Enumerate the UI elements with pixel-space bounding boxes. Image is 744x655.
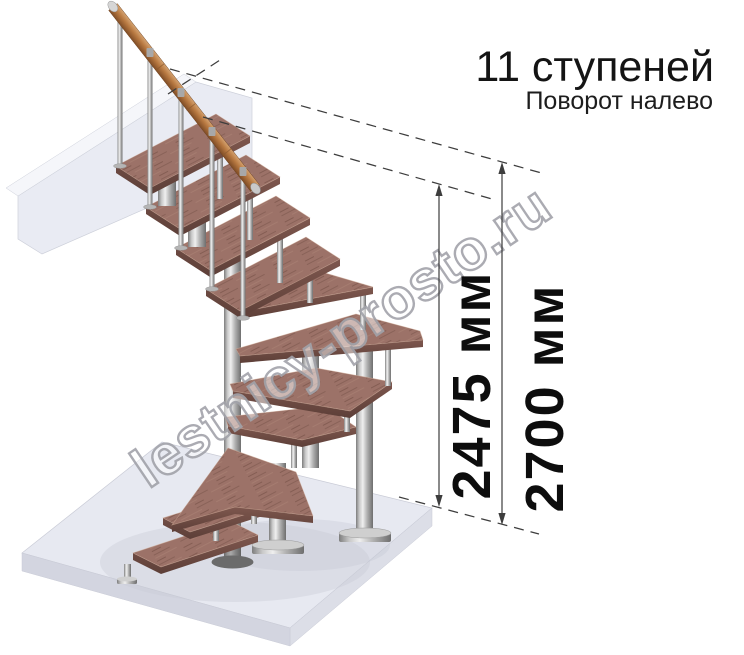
rail-collar (147, 48, 154, 57)
rail-collar (209, 127, 216, 136)
central-column-base (212, 556, 254, 569)
dimension-label-2475: 2475 мм (442, 270, 502, 499)
page-title: 11 ступеней (475, 43, 714, 91)
baluster (179, 92, 184, 248)
rail-collar (240, 167, 247, 176)
spacer-post (385, 347, 391, 386)
column-3-base-plate (252, 540, 304, 550)
page-subtitle: Поворот налево (525, 87, 713, 115)
staircase-diagram-page: lestnicy-prosto.ru 2475 мм 2700 мм 11 ст… (0, 0, 744, 655)
rail-collar (178, 88, 185, 97)
spacer-post (217, 154, 223, 199)
spacer-post (277, 236, 283, 283)
baluster (148, 52, 153, 207)
column-4-base-plate (339, 528, 391, 538)
baluster (210, 131, 215, 289)
baluster (241, 171, 246, 318)
dimension-label-2700: 2700 мм (515, 283, 575, 512)
spacer-post (247, 195, 253, 240)
floor-post-base (117, 577, 137, 582)
staircase-3d-drawing: lestnicy-prosto.ru 2475 мм 2700 мм 11 ст… (0, 0, 744, 655)
baluster (118, 10, 123, 166)
